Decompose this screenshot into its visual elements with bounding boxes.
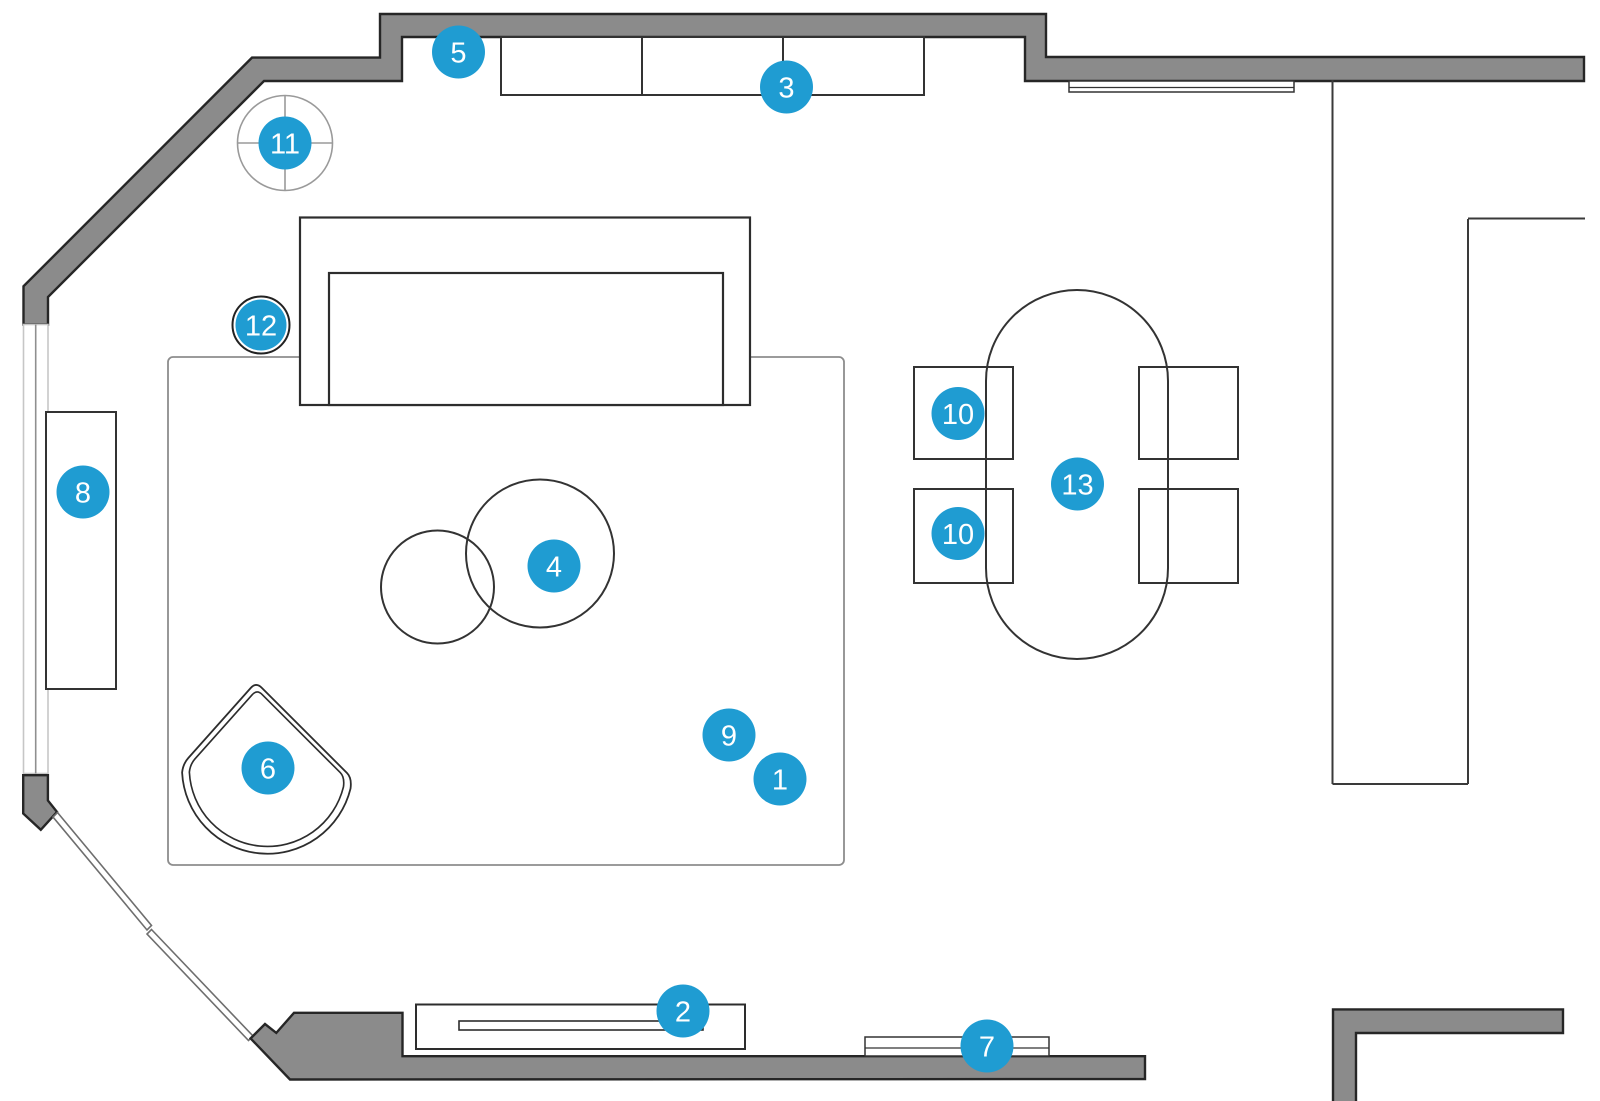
svg-text:5: 5	[450, 38, 466, 70]
svg-text:3: 3	[778, 73, 794, 105]
svg-text:4: 4	[546, 552, 562, 584]
svg-text:7: 7	[979, 1032, 995, 1064]
svg-text:6: 6	[260, 754, 276, 786]
svg-text:10: 10	[942, 399, 974, 431]
svg-text:12: 12	[245, 311, 277, 343]
svg-text:1: 1	[772, 765, 788, 797]
svg-text:9: 9	[721, 721, 737, 753]
svg-text:10: 10	[942, 519, 974, 551]
svg-text:13: 13	[1061, 470, 1093, 502]
svg-text:11: 11	[270, 129, 300, 161]
svg-text:2: 2	[675, 997, 691, 1029]
svg-text:8: 8	[75, 478, 91, 510]
